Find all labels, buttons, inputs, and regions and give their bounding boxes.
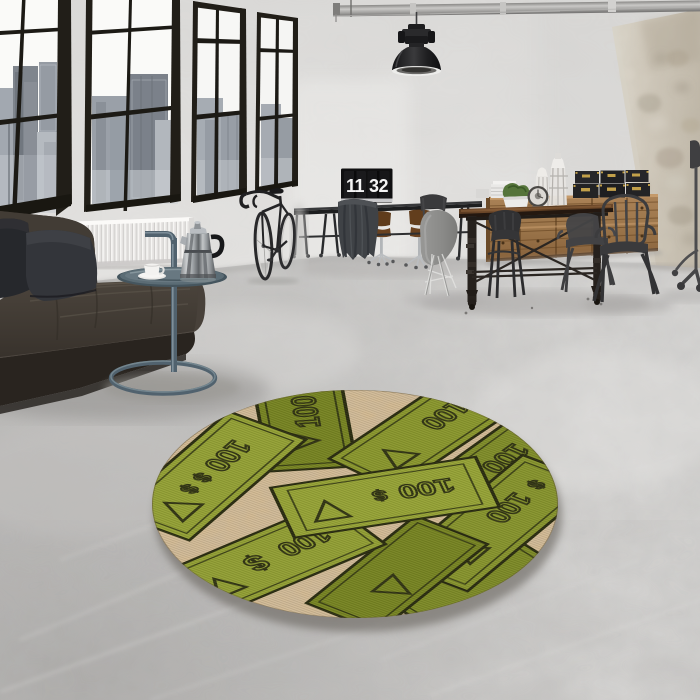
svg-text:11: 11	[346, 176, 365, 196]
svg-text:32: 32	[369, 176, 389, 196]
